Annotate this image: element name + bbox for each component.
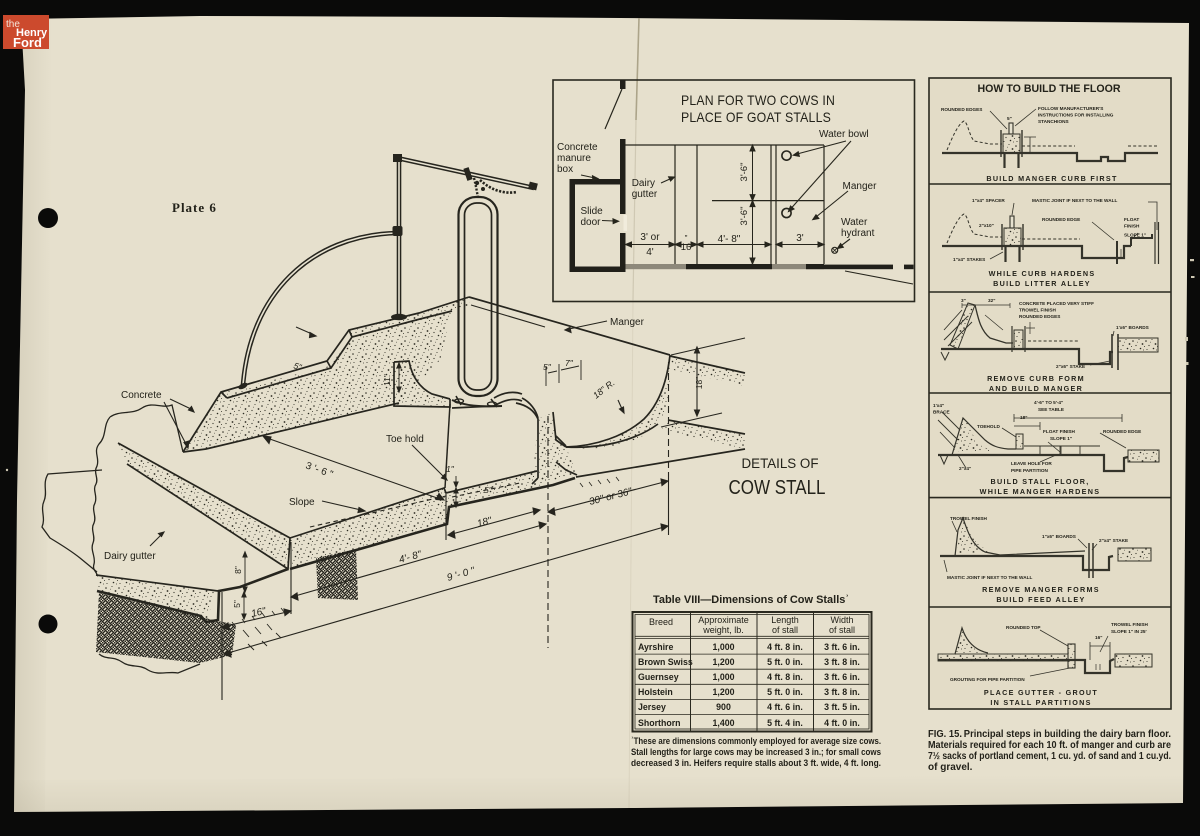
svg-text:Width: Width bbox=[830, 615, 853, 625]
svg-text:PIPE PARTITION: PIPE PARTITION bbox=[1011, 468, 1049, 473]
svg-text:BUILD FEED ALLEY: BUILD FEED ALLEY bbox=[996, 595, 1085, 604]
svg-text:18": 18" bbox=[694, 377, 704, 389]
svg-text:3 ft. 8 in.: 3 ft. 8 in. bbox=[824, 687, 860, 697]
svg-text:Water bowl: Water bowl bbox=[819, 129, 869, 140]
svg-text:ROUNDED EDGES: ROUNDED EDGES bbox=[941, 107, 982, 112]
svg-text:4 ft. 8 in.: 4 ft. 8 in. bbox=[767, 672, 803, 682]
svg-text:Holstein: Holstein bbox=[638, 687, 673, 697]
svg-text:5": 5" bbox=[1007, 116, 1012, 121]
svg-text:1,400: 1,400 bbox=[712, 718, 734, 728]
svg-text:DETAILS OF: DETAILS OF bbox=[742, 456, 819, 471]
svg-text:Length: Length bbox=[771, 615, 799, 625]
svg-text:FLOAT: FLOAT bbox=[1124, 217, 1139, 222]
svg-text:SLOPE 1" IN 25': SLOPE 1" IN 25' bbox=[1111, 629, 1147, 634]
svg-text:1,000: 1,000 bbox=[712, 672, 734, 682]
svg-text:Ford: Ford bbox=[13, 35, 42, 50]
svg-text:3 ft. 5 in.: 3 ft. 5 in. bbox=[824, 702, 860, 712]
svg-text:3 ft. 6 in.: 3 ft. 6 in. bbox=[824, 672, 860, 682]
svg-text:MASTIC JOINT IF NEXT TO THE WA: MASTIC JOINT IF NEXT TO THE WALL bbox=[1032, 198, 1117, 203]
svg-text:ROUNDED EDGES: ROUNDED EDGES bbox=[1019, 314, 1060, 319]
svg-text:BUILD LITTER ALLEY: BUILD LITTER ALLEY bbox=[993, 279, 1091, 288]
svg-text:MASTIC JOINT IF NEXT TO THE WA: MASTIC JOINT IF NEXT TO THE WALL bbox=[947, 575, 1032, 580]
svg-text:ROUNDED EDGE: ROUNDED EDGE bbox=[1103, 429, 1141, 434]
svg-text:Stall lengths for large cows m: Stall lengths for large cows may be incr… bbox=[631, 747, 881, 757]
svg-text:REMOVE MANGER FORMS: REMOVE MANGER FORMS bbox=[982, 585, 1100, 594]
svg-text:Approximate: Approximate bbox=[698, 615, 749, 625]
svg-text:Ayrshire: Ayrshire bbox=[638, 642, 673, 652]
svg-text:Breed: Breed bbox=[649, 617, 673, 627]
svg-text:PLAN FOR TWO COWS IN: PLAN FOR TWO COWS IN bbox=[681, 92, 835, 108]
svg-text:BUILD STALL FLOOR,: BUILD STALL FLOOR, bbox=[991, 477, 1090, 486]
svg-text:5": 5" bbox=[232, 600, 242, 608]
svg-text:1'x6" BOARDS: 1'x6" BOARDS bbox=[1116, 325, 1149, 330]
svg-text:5 ft. 0 in.: 5 ft. 0 in. bbox=[767, 657, 803, 667]
svg-text:of gravel.: of gravel. bbox=[928, 762, 973, 773]
svg-text:Guernsey: Guernsey bbox=[638, 672, 679, 682]
svg-text:Table VIII—Dimensions of Cow S: Table VIII—Dimensions of Cow Stallsʾ bbox=[653, 594, 849, 606]
svg-text:BRACE: BRACE bbox=[933, 410, 950, 415]
svg-text:SLOPE 1": SLOPE 1" bbox=[1050, 436, 1072, 441]
svg-text:3': 3' bbox=[796, 233, 804, 244]
svg-text:4': 4' bbox=[646, 247, 654, 258]
svg-text:Dairy: Dairy bbox=[632, 178, 655, 189]
svg-text:Brown Swiss: Brown Swiss bbox=[638, 657, 693, 667]
svg-text:1"x4" STAKES: 1"x4" STAKES bbox=[953, 257, 985, 262]
svg-text:PLACE GUTTER - GROUT: PLACE GUTTER - GROUT bbox=[984, 688, 1098, 697]
svg-text:Jersey: Jersey bbox=[638, 702, 666, 712]
svg-text:1,000: 1,000 bbox=[712, 642, 734, 652]
svg-text:decreased 3 in. Heifers requir: decreased 3 in. Heifers require stalls a… bbox=[631, 758, 881, 768]
svg-text:3'-6": 3'-6" bbox=[739, 163, 750, 182]
svg-text:FOLLOW MANUFACTURER'S: FOLLOW MANUFACTURER'S bbox=[1038, 106, 1103, 111]
svg-text:7": 7" bbox=[565, 358, 574, 368]
svg-text:FINISH: FINISH bbox=[1124, 224, 1140, 229]
svg-text:5": 5" bbox=[484, 485, 493, 495]
svg-text:Toe hold: Toe hold bbox=[386, 434, 424, 445]
svg-text:COW STALL: COW STALL bbox=[729, 477, 826, 499]
svg-text:16: 16 bbox=[681, 242, 692, 253]
svg-text:PLACE OF GOAT STALLS: PLACE OF GOAT STALLS bbox=[681, 109, 831, 125]
svg-text:TROWEL FINISH: TROWEL FINISH bbox=[950, 516, 988, 521]
svg-text:weight, lb.: weight, lb. bbox=[702, 625, 744, 635]
svg-text:3'-6": 3'-6" bbox=[739, 207, 750, 226]
svg-text:of stall: of stall bbox=[772, 625, 798, 635]
svg-text:Shorthorn: Shorthorn bbox=[638, 718, 681, 728]
svg-text:TROWEL FINISH: TROWEL FINISH bbox=[1019, 308, 1057, 313]
svg-text:ROUNDED TOP: ROUNDED TOP bbox=[1006, 625, 1041, 630]
svg-text:TOEHOLD: TOEHOLD bbox=[977, 424, 1000, 429]
svg-text:HOW TO BUILD THE FLOOR: HOW TO BUILD THE FLOOR bbox=[978, 83, 1121, 95]
svg-text:3": 3" bbox=[961, 298, 966, 303]
svg-text:SEE TABLE: SEE TABLE bbox=[1038, 407, 1064, 412]
svg-text:Concrete: Concrete bbox=[121, 390, 162, 401]
svg-text:FIG. 15. Principal steps in bu: FIG. 15. Principal steps in building the… bbox=[928, 729, 1171, 740]
svg-text:Manger: Manger bbox=[843, 181, 878, 192]
svg-text:Concrete: Concrete bbox=[557, 142, 598, 153]
svg-text:Manger: Manger bbox=[610, 317, 645, 328]
svg-text:5 ft. 0 in.: 5 ft. 0 in. bbox=[767, 687, 803, 697]
svg-text:2"x4" STAKE: 2"x4" STAKE bbox=[1099, 538, 1128, 543]
svg-text:18": 18" bbox=[1020, 415, 1027, 420]
svg-text:ROUNDED EDGE: ROUNDED EDGE bbox=[1042, 217, 1080, 222]
svg-text:box: box bbox=[557, 164, 573, 175]
svg-text:REMOVE CURB FORM: REMOVE CURB FORM bbox=[987, 374, 1085, 383]
svg-text:1,200: 1,200 bbox=[712, 687, 734, 697]
svg-text:16": 16" bbox=[1095, 635, 1102, 640]
svg-text:1'x4": 1'x4" bbox=[933, 403, 944, 408]
svg-text:Slope: Slope bbox=[289, 497, 315, 508]
svg-text:CONCRETE PLACED VERY STIFF: CONCRETE PLACED VERY STIFF bbox=[1019, 301, 1094, 306]
svg-text:WHILE MANGER HARDENS: WHILE MANGER HARDENS bbox=[980, 487, 1101, 496]
svg-text:door: door bbox=[581, 217, 602, 228]
svg-text:8": 8" bbox=[233, 566, 243, 574]
svg-text:4 ft. 0 in.: 4 ft. 0 in. bbox=[824, 718, 860, 728]
svg-text:2"x10": 2"x10" bbox=[979, 223, 994, 228]
svg-text:TROWEL FINISH: TROWEL FINISH bbox=[1111, 622, 1149, 627]
svg-text:4'-6" TO 5'-4": 4'-6" TO 5'-4" bbox=[1034, 400, 1063, 405]
svg-text:7½ sacks of portland cement, 1: 7½ sacks of portland cement, 1 cu. yd. o… bbox=[928, 751, 1171, 762]
svg-text:5": 5" bbox=[543, 362, 552, 372]
svg-text:1,200: 1,200 bbox=[712, 657, 734, 667]
svg-text:4'- 8": 4'- 8" bbox=[718, 234, 741, 245]
svg-text:Dairy gutter: Dairy gutter bbox=[104, 551, 156, 562]
svg-text:LEAVE HOLE FOR: LEAVE HOLE FOR bbox=[1011, 461, 1052, 466]
svg-text:FLOAT FINISH: FLOAT FINISH bbox=[1043, 429, 1076, 434]
svg-text:AND BUILD MANGER: AND BUILD MANGER bbox=[989, 384, 1083, 393]
svg-text:SLOPE 1": SLOPE 1" bbox=[1124, 233, 1146, 238]
svg-text:of stall: of stall bbox=[829, 625, 855, 635]
svg-text:hydrant: hydrant bbox=[841, 228, 875, 239]
svg-text:1"x4" SPACER: 1"x4" SPACER bbox=[972, 198, 1005, 203]
svg-text:Water: Water bbox=[841, 217, 868, 228]
svg-text:GROUTING FOR PIPE PARTITION: GROUTING FOR PIPE PARTITION bbox=[950, 677, 1025, 682]
svg-text:manure: manure bbox=[557, 153, 591, 164]
svg-text:Slide: Slide bbox=[581, 206, 604, 217]
svg-text:5 ft. 4 in.: 5 ft. 4 in. bbox=[767, 718, 803, 728]
svg-text:3' or: 3' or bbox=[640, 232, 660, 243]
svg-text:3 ft. 6 in.: 3 ft. 6 in. bbox=[824, 642, 860, 652]
svg-text:1": 1" bbox=[446, 464, 455, 474]
svg-text:gutter: gutter bbox=[632, 189, 658, 200]
svg-text:11": 11" bbox=[382, 374, 392, 386]
svg-text:4 ft. 6 in.: 4 ft. 6 in. bbox=[767, 702, 803, 712]
svg-text:WHILE CURB HARDENS: WHILE CURB HARDENS bbox=[989, 269, 1096, 278]
svg-text:IN STALL PARTITIONS: IN STALL PARTITIONS bbox=[990, 698, 1091, 707]
svg-text:3 ft. 8 in.: 3 ft. 8 in. bbox=[824, 657, 860, 667]
svg-text:STANCHIONS: STANCHIONS bbox=[1038, 119, 1069, 124]
svg-text:BUILD MANGER CURB FIRST: BUILD MANGER CURB FIRST bbox=[986, 174, 1117, 183]
svg-text:INSTRUCTIONS FOR INSTALLING: INSTRUCTIONS FOR INSTALLING bbox=[1038, 113, 1114, 118]
svg-text:ʾThese are dimensions commonly: ʾThese are dimensions commonly employed … bbox=[631, 736, 881, 746]
svg-text:Materials required for each 10: Materials required for each 10 ft. of ma… bbox=[928, 740, 1171, 751]
svg-text:32": 32" bbox=[988, 298, 995, 303]
svg-text:4 ft. 8 in.: 4 ft. 8 in. bbox=[767, 642, 803, 652]
svg-text:900: 900 bbox=[716, 702, 731, 712]
svg-text:Plate 6: Plate 6 bbox=[172, 200, 217, 215]
svg-text:1"x6" BOARDS: 1"x6" BOARDS bbox=[1042, 534, 1076, 539]
